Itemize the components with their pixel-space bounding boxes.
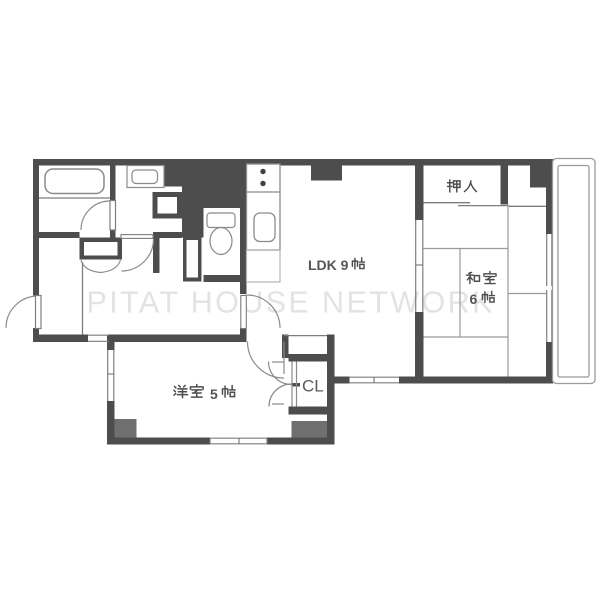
svg-text:6: 6 bbox=[470, 291, 478, 307]
svg-text:LDK 9: LDK 9 bbox=[308, 257, 349, 273]
svg-text:5: 5 bbox=[210, 386, 218, 402]
svg-text:PITAT HOUSE NETWORK: PITAT HOUSE NETWORK bbox=[87, 286, 495, 320]
svg-text:CL: CL bbox=[302, 377, 324, 396]
